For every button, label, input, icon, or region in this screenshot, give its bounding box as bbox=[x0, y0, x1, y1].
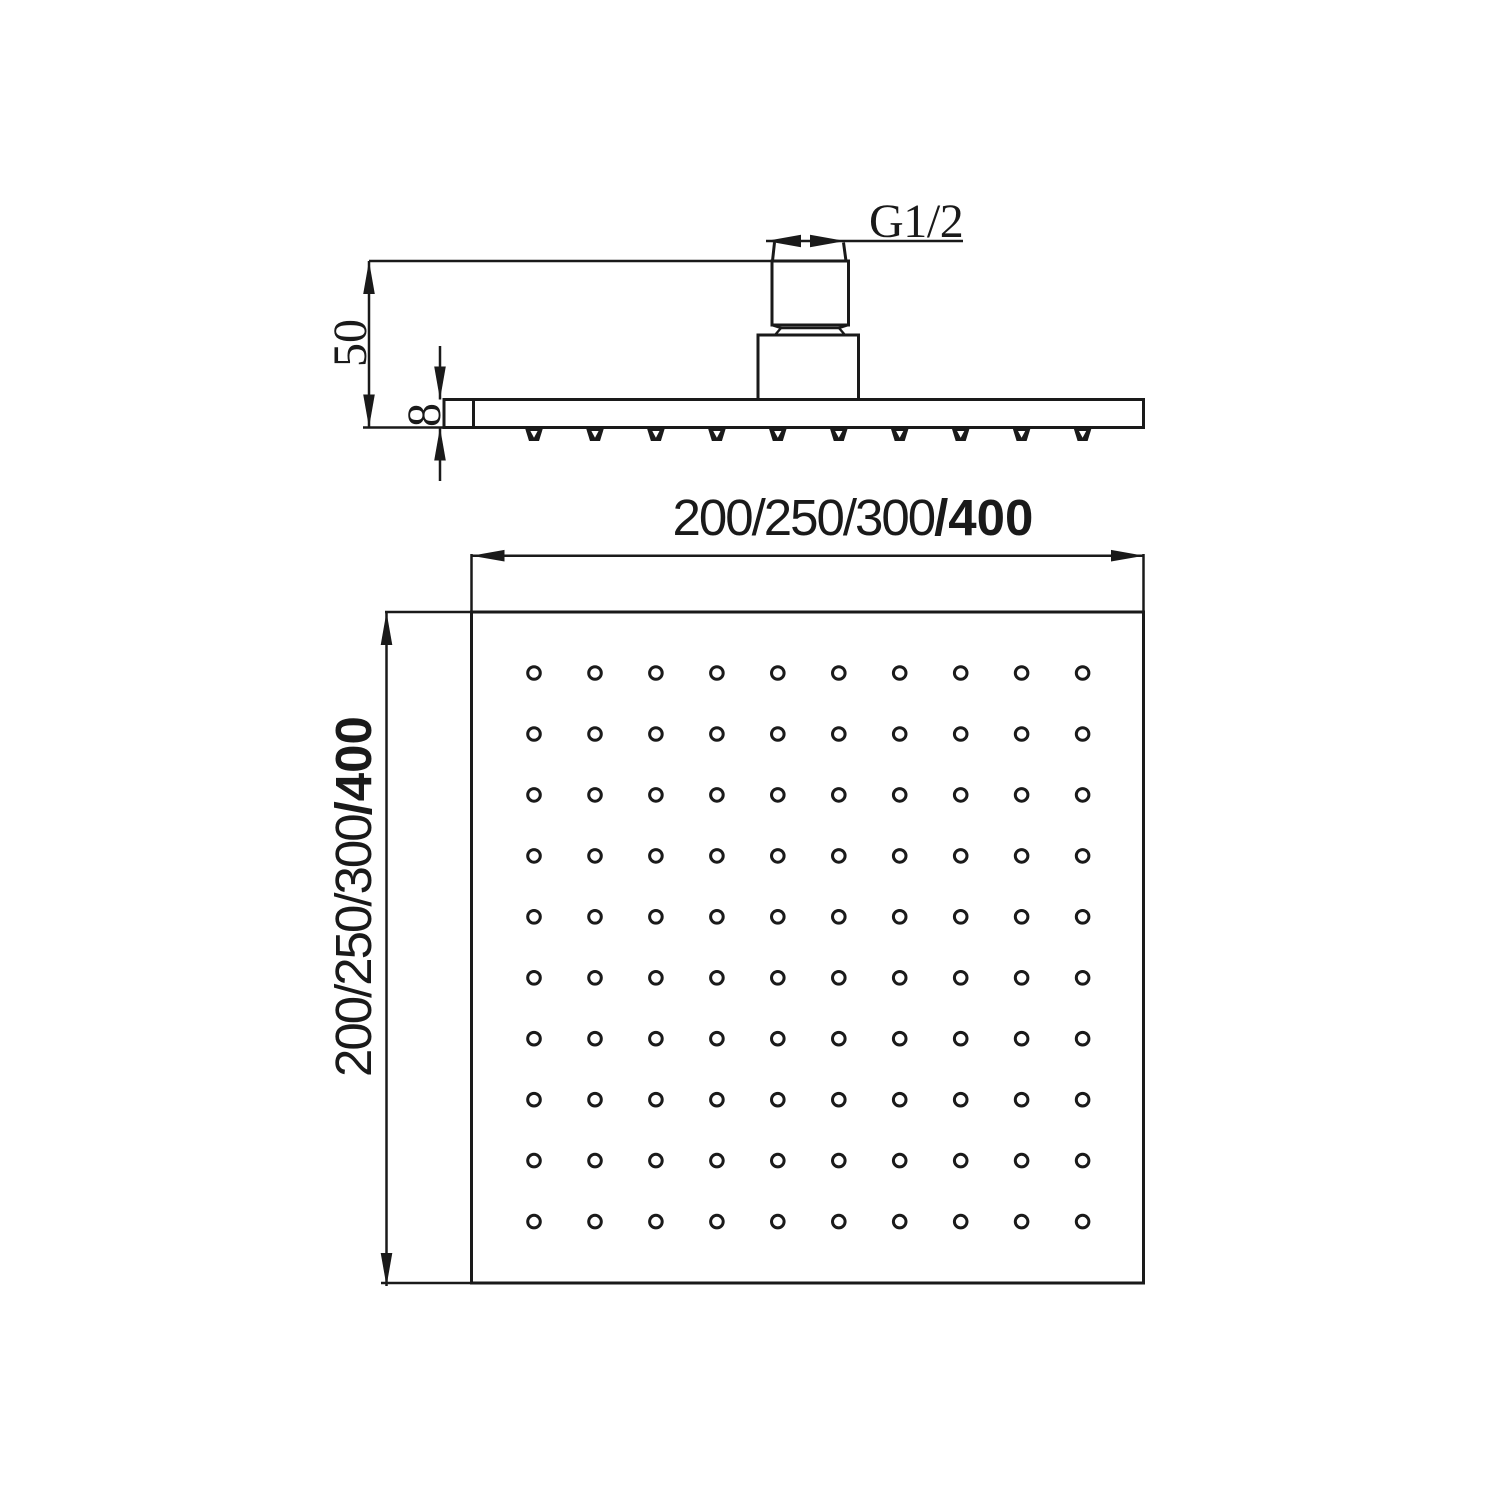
svg-text:50: 50 bbox=[324, 319, 377, 367]
svg-text:8: 8 bbox=[398, 403, 451, 427]
svg-text:G1/2: G1/2 bbox=[869, 195, 963, 248]
svg-text:200/250/300/400: 200/250/300/400 bbox=[325, 716, 382, 1077]
svg-text:200/250/300/400: 200/250/300/400 bbox=[673, 489, 1034, 546]
